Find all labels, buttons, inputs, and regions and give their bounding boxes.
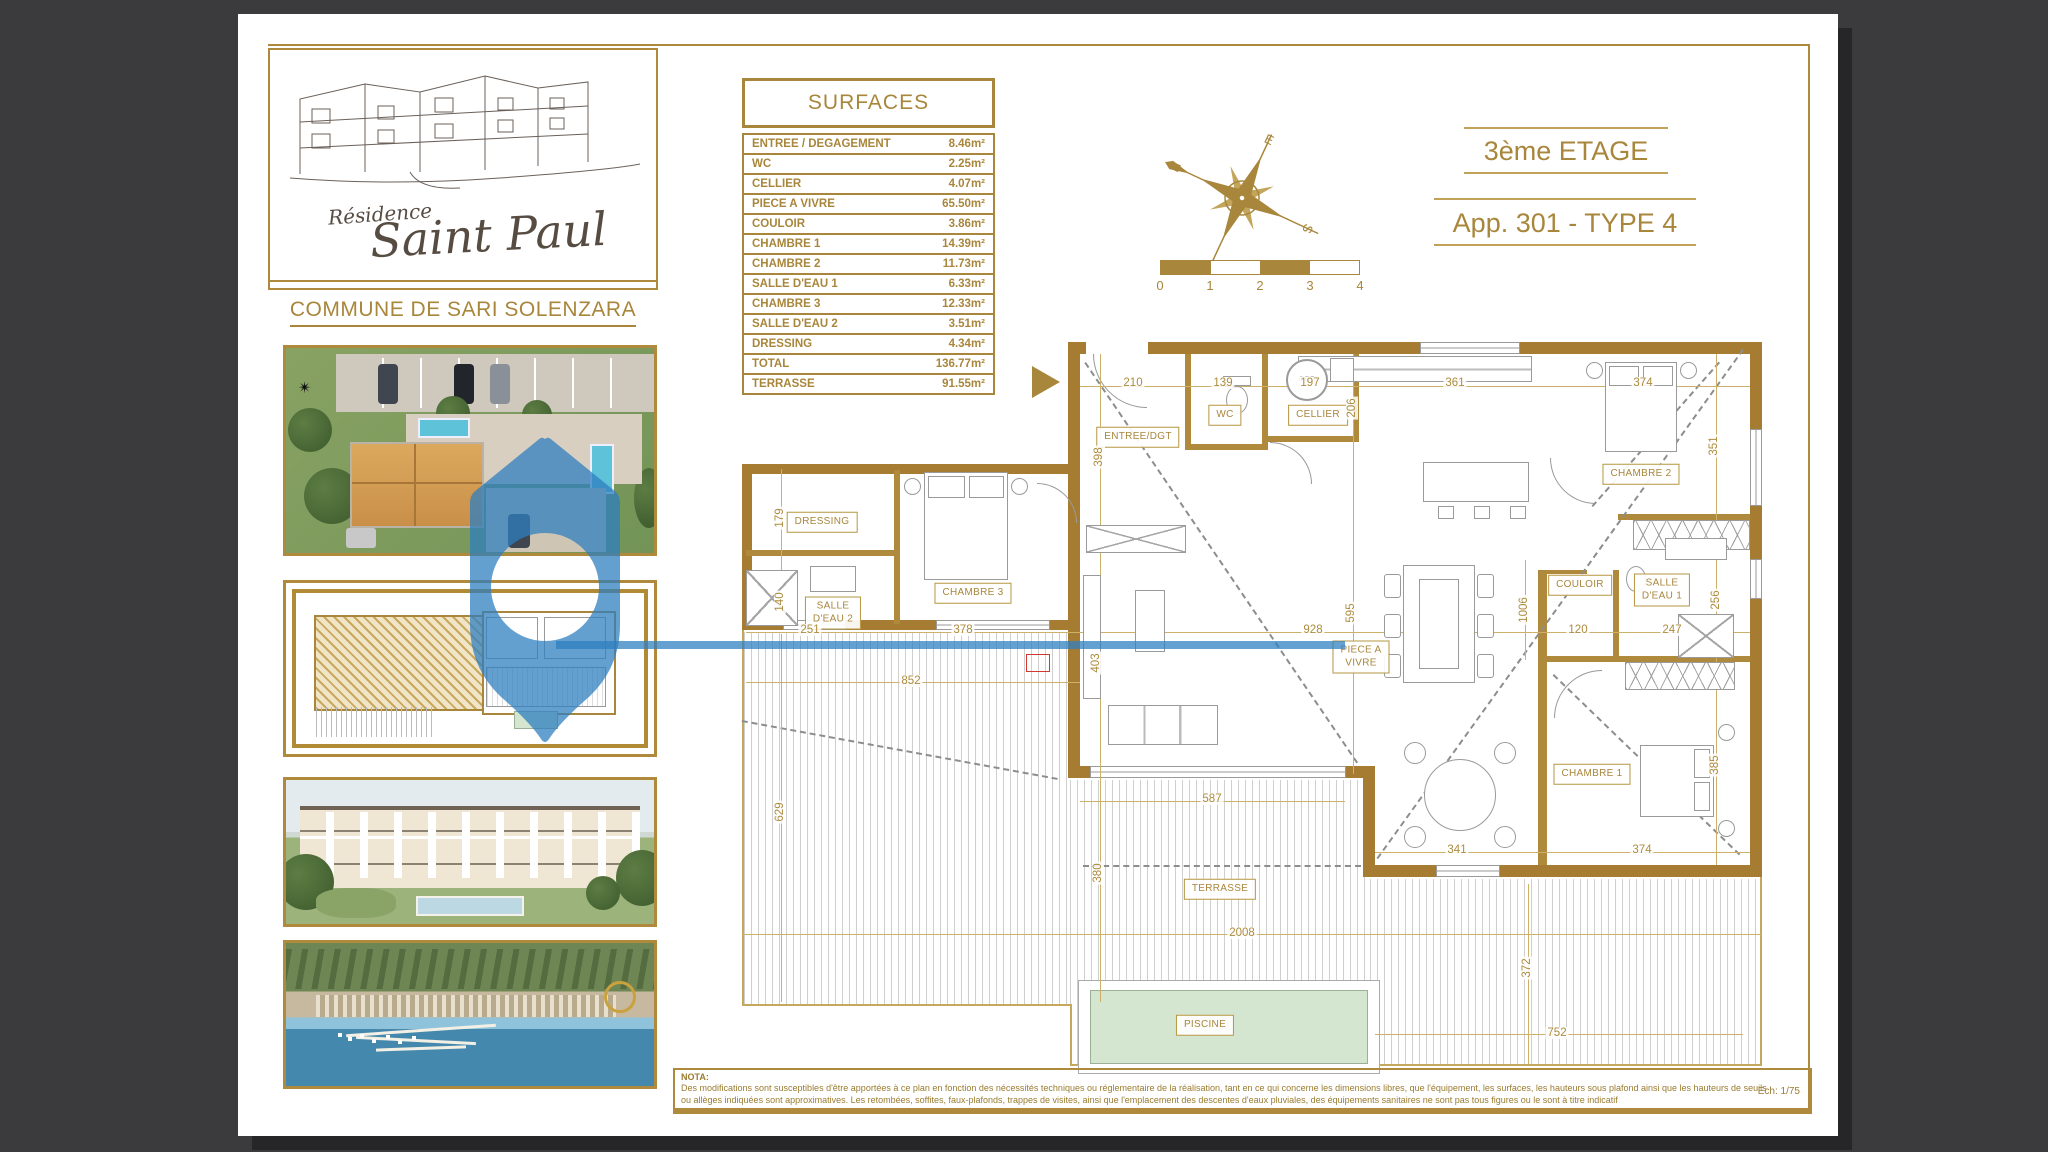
dimension-label: 372 xyxy=(1521,956,1533,979)
sliding-bay-window xyxy=(1090,766,1346,778)
room-label: SALLE D'EAU 1 xyxy=(1634,574,1690,607)
wall xyxy=(1363,865,1762,877)
dimension-label: 752 xyxy=(1545,1027,1568,1039)
stool xyxy=(1474,506,1490,519)
room-label: CHAMBRE 3 xyxy=(934,583,1011,604)
tv-unit xyxy=(1083,575,1101,699)
wardrobe-chambre1 xyxy=(1625,662,1735,690)
chair xyxy=(1404,742,1426,764)
wall xyxy=(742,464,1074,474)
dimension-label: 385 xyxy=(1709,753,1721,776)
vasque-salle-eau-1 xyxy=(1665,538,1727,560)
dimension-label: 351 xyxy=(1708,434,1720,457)
shower-salle-eau-1 xyxy=(1678,614,1734,658)
washing-machine xyxy=(1330,358,1354,382)
entrance-door-opening xyxy=(1086,342,1148,354)
room-label: CHAMBRE 1 xyxy=(1553,764,1630,785)
scale-number: 4 xyxy=(1356,278,1363,293)
dimension-label: 374 xyxy=(1631,377,1654,389)
dimension-label: 629 xyxy=(774,800,786,823)
dimension-label: 1006 xyxy=(1518,595,1530,625)
room-label: CELLIER xyxy=(1288,405,1348,426)
round-table xyxy=(1424,759,1496,831)
room-label: COULOIR xyxy=(1548,575,1612,596)
dimension-label: 341 xyxy=(1445,844,1468,856)
partition xyxy=(894,470,900,624)
red-annotation-box xyxy=(1026,654,1050,672)
vasque-salle-eau-2 xyxy=(810,566,856,592)
dimension-label: 852 xyxy=(899,675,922,687)
scale-number: 2 xyxy=(1256,278,1263,293)
dimension-label: 140 xyxy=(774,590,786,613)
chair xyxy=(1477,614,1494,638)
terrace-decking xyxy=(744,632,1070,1004)
door-swing xyxy=(1554,670,1602,718)
dimension-label: 179 xyxy=(774,506,786,529)
wall xyxy=(1068,354,1080,778)
sofa xyxy=(1108,705,1218,745)
room-label: WC xyxy=(1208,405,1241,426)
partition xyxy=(1268,436,1359,442)
kitchen-island xyxy=(1423,462,1529,502)
stool xyxy=(1438,506,1454,519)
scale-number: 1 xyxy=(1206,278,1213,293)
partition xyxy=(1613,570,1619,662)
door-swing xyxy=(1270,442,1312,484)
room-label: PISCINE xyxy=(1176,1015,1234,1036)
plan-sheet: Résidence Saint Paul COMMUNE DE SARI SOL… xyxy=(238,14,1838,1136)
dimension-label: 587 xyxy=(1200,793,1223,805)
nota-line1: Des modifications sont susceptibles d'êt… xyxy=(681,1083,1804,1094)
dimension-label: 206 xyxy=(1346,396,1358,419)
wall xyxy=(1068,342,1762,354)
dimension-label: 380 xyxy=(1092,861,1104,884)
dimension-label: 197 xyxy=(1298,377,1321,389)
dimension-label: 398 xyxy=(1093,445,1105,468)
screenshot-stage: Résidence Saint Paul COMMUNE DE SARI SOL… xyxy=(0,0,2048,1152)
nota-line2: ou allèges indiquées sont approximatives… xyxy=(681,1095,1804,1106)
room-label: ENTREE/DGT xyxy=(1096,427,1179,448)
window xyxy=(1436,865,1500,877)
dimension-label: 120 xyxy=(1566,624,1589,636)
chair xyxy=(1384,574,1401,598)
dimension-label: 928 xyxy=(1301,624,1324,636)
nota-title: NOTA: xyxy=(681,1072,1804,1083)
room-label: DRESSING xyxy=(787,512,858,533)
dimension-label: 403 xyxy=(1090,651,1102,674)
chair xyxy=(1494,826,1516,848)
placard-entree xyxy=(1086,525,1186,553)
partition xyxy=(1185,354,1191,450)
room-label: TERRASSE xyxy=(1184,879,1256,900)
stool xyxy=(1510,506,1526,519)
shower-salle-eau-2 xyxy=(746,570,798,626)
partition xyxy=(1185,444,1268,450)
partition xyxy=(1538,570,1547,865)
chair xyxy=(1494,742,1516,764)
scale-number: 3 xyxy=(1306,278,1313,293)
chair xyxy=(1404,826,1426,848)
scale-reference: Ech: 1/75 xyxy=(1758,1086,1800,1099)
partition xyxy=(746,550,894,556)
wall xyxy=(1363,766,1375,877)
dimension-label: 374 xyxy=(1630,844,1653,856)
wall xyxy=(1750,342,1762,877)
dimension-label: 139 xyxy=(1211,377,1234,389)
dimension-label: 251 xyxy=(798,624,821,636)
dimension-label: 378 xyxy=(951,624,974,636)
room-label: CHAMBRE 2 xyxy=(1602,464,1679,485)
watermark-house-pin-icon xyxy=(470,435,620,747)
dimension-label: 361 xyxy=(1443,377,1466,389)
window xyxy=(1420,342,1520,354)
door-swing xyxy=(1550,458,1596,504)
chair xyxy=(1477,574,1494,598)
dimension-label: 256 xyxy=(1710,588,1722,611)
dimension-label: 247 xyxy=(1660,624,1683,636)
chair xyxy=(1477,654,1494,678)
window xyxy=(1750,559,1762,599)
entrance-arrow-icon xyxy=(1032,366,1060,398)
window xyxy=(1750,429,1762,506)
scale-number: 0 xyxy=(1156,278,1163,293)
chair xyxy=(1384,614,1401,638)
watermark-line xyxy=(556,641,1345,649)
dimension-label: 2008 xyxy=(1227,927,1257,939)
terrace-dash-line xyxy=(1083,865,1361,867)
dimension-label: 595 xyxy=(1345,601,1357,624)
dimension-label: 210 xyxy=(1121,377,1144,389)
nota-box: NOTA: Des modifications sont susceptible… xyxy=(673,1068,1812,1114)
